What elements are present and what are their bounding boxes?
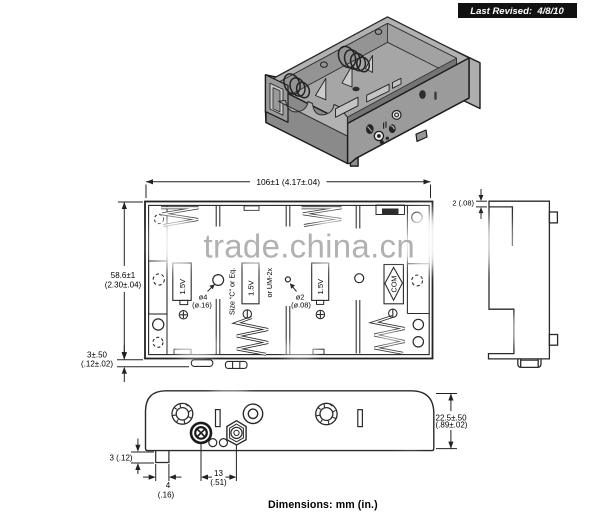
svg-text:or UM-2x: or UM-2x [265,268,274,298]
svg-text:(.51): (.51) [210,478,227,487]
svg-text:3 (.12): 3 (.12) [109,454,132,463]
svg-text:(ø.16): (ø.16) [192,301,212,310]
svg-text:58.6±1: 58.6±1 [111,271,136,280]
svg-text:(.12±.02): (.12±.02) [81,360,113,369]
svg-text:(.89±.02): (.89±.02) [436,421,468,430]
svg-text:3±.50: 3±.50 [87,351,108,360]
svg-text:(ø.08): (ø.08) [291,301,311,310]
svg-text:2 (.08): 2 (.08) [452,198,474,207]
svg-text:COM: COM [389,276,398,293]
svg-text:1.5V: 1.5V [247,279,256,296]
svg-text:Last Revised: 4/8/10: Last Revised: 4/8/10 [470,6,564,17]
svg-text:(.16): (.16) [158,491,175,500]
svg-text:106±1 (4.17±.04): 106±1 (4.17±.04) [256,177,320,187]
svg-text:4: 4 [166,481,171,490]
svg-text:13: 13 [214,469,223,478]
svg-text:trade.china.cn: trade.china.cn [204,228,416,265]
svg-text:(2.30±.04): (2.30±.04) [105,281,142,290]
svg-text:1.5V: 1.5V [178,278,187,295]
svg-text:1.5V: 1.5V [316,278,325,295]
svg-text:Size “C” or Eq.: Size “C” or Eq. [228,268,237,315]
svg-text:Dimensions: mm (in.): Dimensions: mm (in.) [268,499,378,511]
